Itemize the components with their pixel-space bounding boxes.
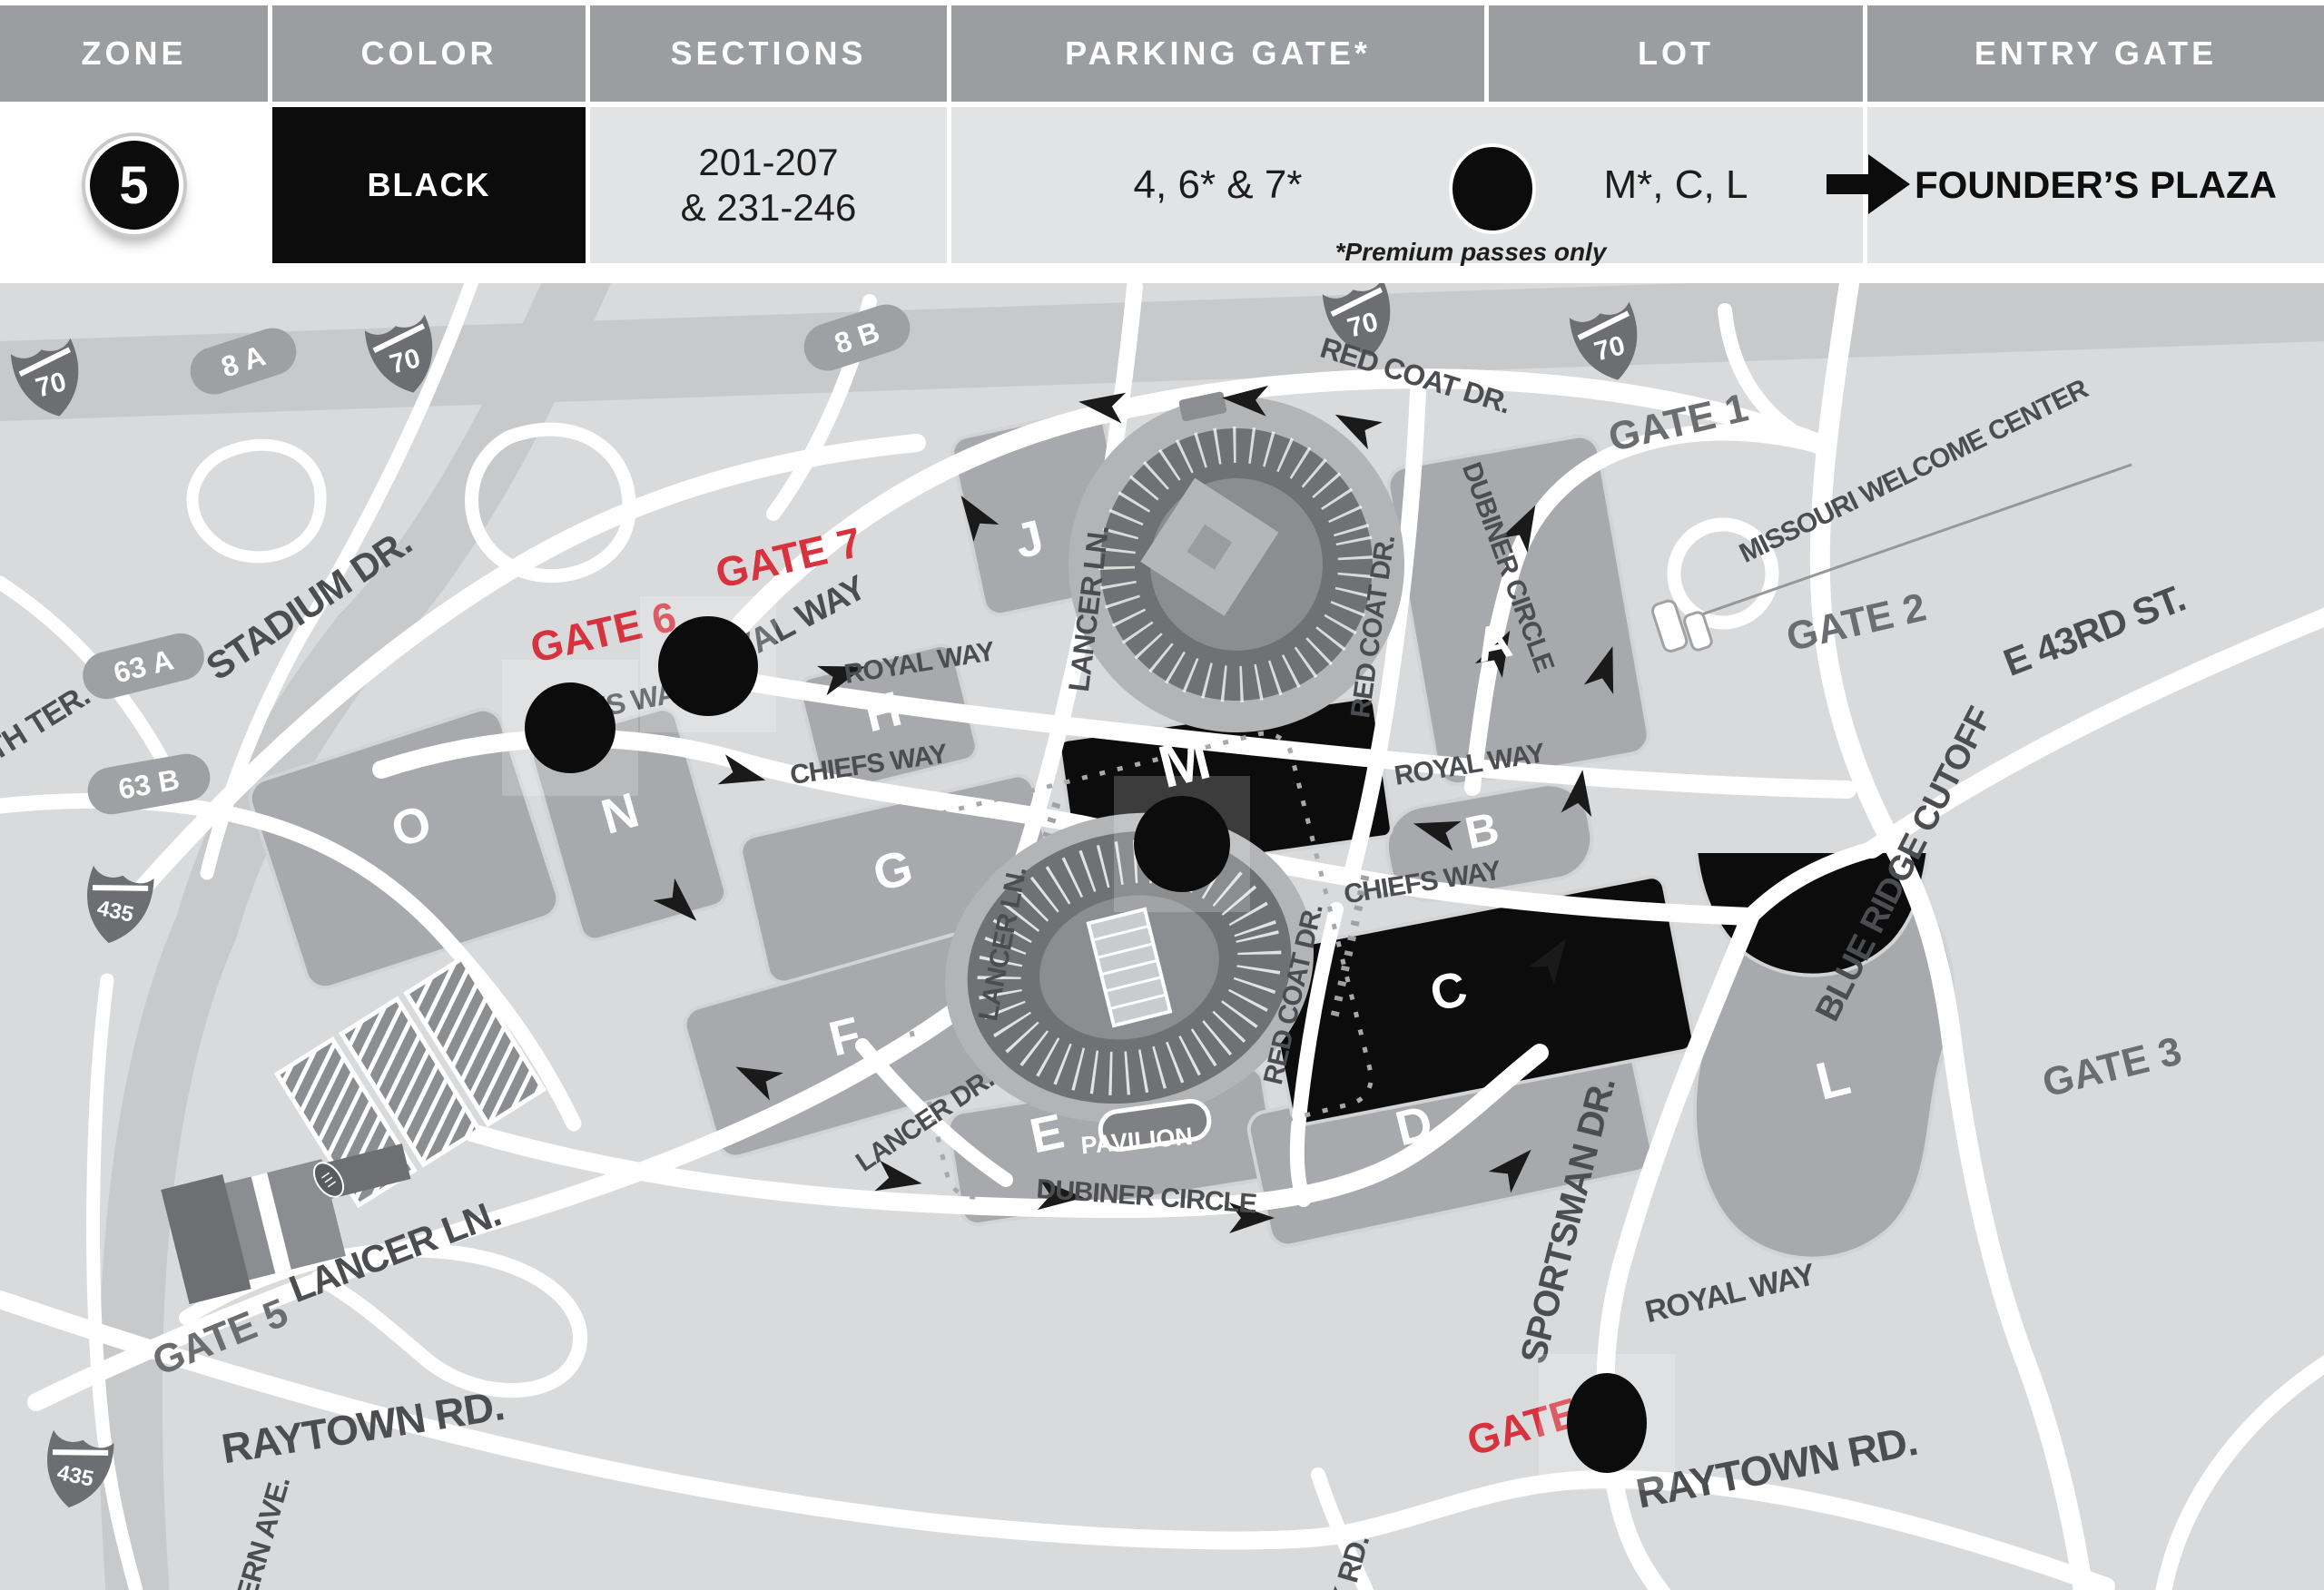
column-header-color: COLOR: [272, 5, 586, 102]
founders-plaza-dot-icon: [1134, 796, 1230, 892]
parking-map-page: ZONE COLOR SECTIONS PARKING GATE* LOT EN…: [0, 0, 2324, 1590]
column-header-sections: SECTIONS: [590, 5, 947, 102]
column-header-lot: LOT: [1489, 5, 1863, 102]
sections-line-2: & 231-246: [681, 185, 857, 231]
zone-info-table: ZONE COLOR SECTIONS PARKING GATE* LOT EN…: [0, 0, 2324, 283]
column-header-zone: ZONE: [0, 5, 268, 102]
zone-cell: 5: [0, 107, 268, 263]
gate-7-dot-icon: [658, 616, 758, 716]
gate-4-dot-icon: [1567, 1373, 1647, 1473]
column-header-entry-gate: ENTRY GATE: [1867, 5, 2324, 102]
zone-number-badge: 5: [85, 136, 183, 234]
zone-color-dot-icon: [1449, 143, 1536, 234]
sections-line-1: 201-207: [698, 140, 838, 185]
sections-cell: 201-207 & 231-246: [590, 107, 947, 263]
column-header-parking-gate: PARKING GATE*: [951, 5, 1484, 102]
gate-6-dot-icon: [525, 682, 615, 773]
entry-arrow-icon: [1827, 152, 1914, 216]
color-cell: BLACK: [272, 107, 586, 263]
premium-footnote: *Premium passes only: [1253, 238, 1689, 267]
complex-map: 70 70 70 70 435: [0, 283, 2324, 1590]
entry-gate-cell: FOUNDER’S PLAZA: [1867, 107, 2324, 263]
